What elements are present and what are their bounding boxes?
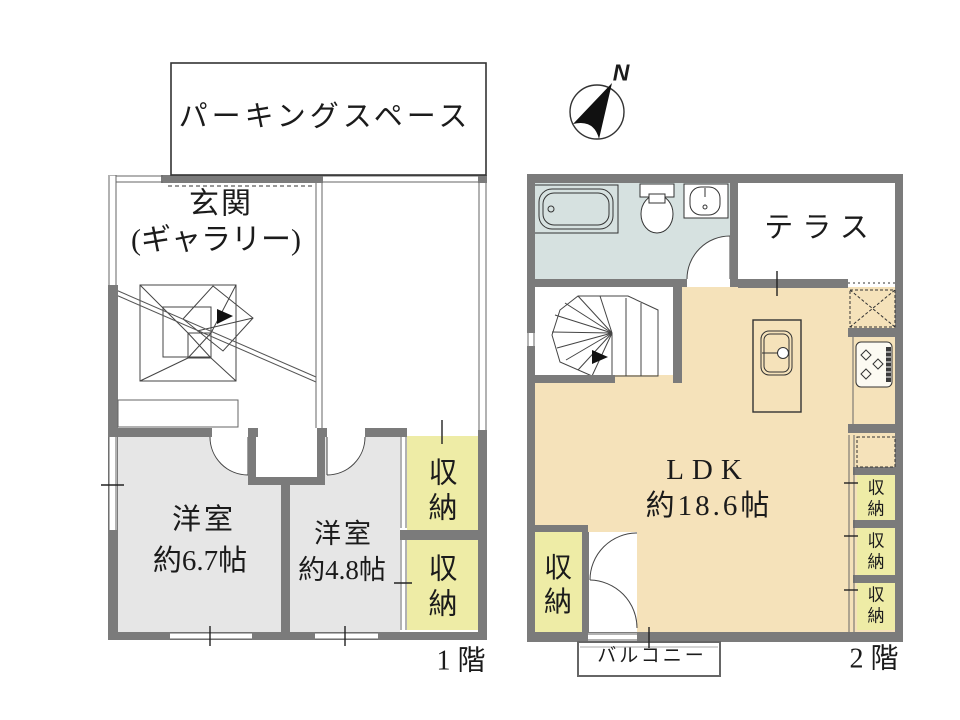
stairs-1f [116,285,316,382]
wall-2f-top [527,174,903,183]
wall-stub-left [248,437,256,479]
wall-1f-rooms-top-c [317,428,327,437]
wall-kitchen-stub-top [848,328,903,337]
north-label: N [613,60,630,85]
hallway-stub-floor [256,437,317,477]
storage2f-right3-label: 収納 [867,585,885,626]
parking-label: パーキングスペース [179,102,472,134]
sink-drain [778,348,789,359]
storage2f-left-label: 収納 [543,552,572,620]
wall-storage1f-divider [400,530,487,540]
wall-bath-terrace [730,174,738,287]
wall-bath-bottom [535,279,687,287]
wall-storage2f-div0 [853,467,903,475]
wall-2f-right [895,183,903,642]
wall-storage2f-left-top [527,525,588,532]
wall-storage2f-div1 [853,520,903,528]
floor1-label: 1 階 [436,647,485,678]
stairs1f-rail-2 [116,295,316,382]
ldk-name-label: LDK [666,455,750,487]
storage1f-lower-label: 収納 [428,553,458,624]
floor-plan-canvas: パーキングスペース 玄関 (ギャラリー) 洋室 約6.7帖 洋室 約4.8帖 収… [0,0,960,720]
wall-stairroom-right [673,287,682,383]
storage1f-upper-label: 収納 [428,457,458,528]
wall-1f-rooms-top-b [248,428,258,437]
room2-name-label: 洋室 [314,520,374,550]
terrace-label: テラス [764,213,877,245]
compass [570,83,624,139]
storage2f-right1-label: 収納 [867,478,885,519]
wall-room-divider [281,485,290,632]
wall-kitchen-stub-bottom [848,424,903,433]
room1-name-label: 洋室 [172,505,236,537]
wall-1f-rooms-top-d [365,428,407,437]
entrance-label: 玄関 [189,188,253,221]
toilet-seat [649,194,665,203]
storage2f-right2-label: 収納 [867,531,885,572]
floor2-label: 2 階 [849,645,898,676]
entrance-cabinet [118,400,238,427]
stairs1f-arrow [217,309,233,324]
storage2f-door-area [588,532,637,632]
room1-size-label: 約6.7帖 [153,546,247,578]
wall-stub-cap [248,477,325,485]
wall-storage2f-left-side [582,532,589,632]
wall-terrace-bottom [738,279,848,288]
wall-stairroom-bottom [527,375,615,383]
basin-counter [684,184,728,218]
wall-storage2f-div2 [853,575,903,583]
floor-plan-drawing [0,0,960,720]
wall-1f-top-corner [478,175,487,183]
wall-2f-bottom [527,632,903,642]
balcony-label: バルコニー [597,647,707,668]
stairs1f-rail-1 [116,290,316,377]
wall-1f-rooms-top-a [108,428,212,437]
wall-2f-left [527,183,535,642]
stairroom2f-floor [535,287,673,375]
wall-stub-right [317,437,325,479]
ldk-size-label: 約18.6帖 [646,491,773,523]
wall-1f-top [161,175,323,183]
room2-size-label: 約4.8帖 [298,556,386,586]
wall-1f-bottom [108,632,487,640]
entrance-sub-label: (ギャラリー) [131,224,301,257]
